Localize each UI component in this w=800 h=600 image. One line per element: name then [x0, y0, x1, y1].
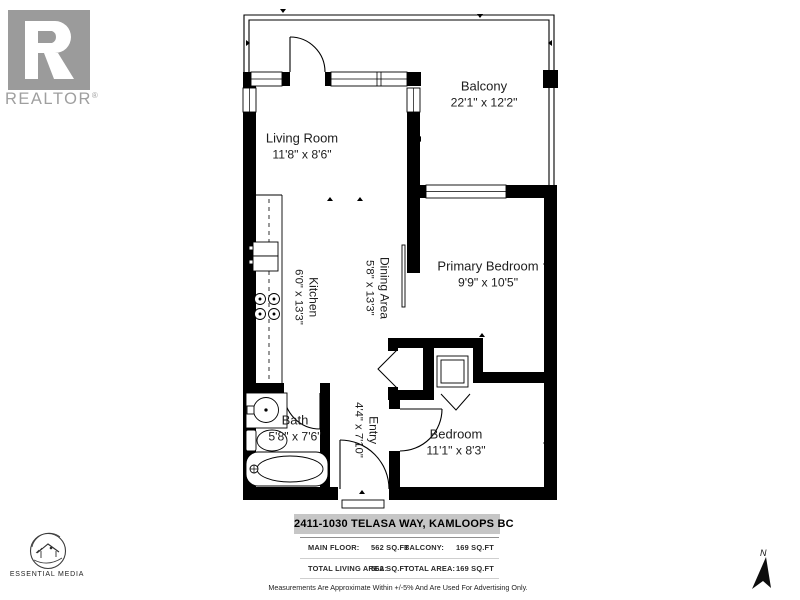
- room-label-living-room: Living Room 11'8" x 8'6": [266, 131, 338, 164]
- disclaimer-text: Measurements Are Approximate Within +/-5…: [268, 583, 527, 592]
- table-rule-mid: [300, 558, 499, 559]
- cooktop-icon: [255, 294, 280, 320]
- area-value: 169 SQ.FT: [456, 564, 494, 573]
- room-label-kitchen: Kitchen 6'0" x 13'3": [291, 269, 320, 325]
- entry-threshold: [342, 500, 384, 508]
- washer-icon: [437, 356, 468, 387]
- address-bar: 2411-1030 TELASA WAY, KAMLOOPS BC: [294, 514, 500, 534]
- area-label: MAIN FLOOR:: [308, 543, 359, 552]
- room-label-bath: Bath 5'8" x 7'6": [268, 413, 321, 446]
- table-rule-top: [300, 537, 499, 538]
- room-label-dining-area: Dining Area 5'8" x 13'3": [362, 257, 391, 319]
- window: [426, 185, 506, 198]
- window: [243, 88, 256, 112]
- area-label: TOTAL AREA:: [404, 564, 455, 573]
- window: [407, 88, 420, 112]
- bathtub-icon: [246, 452, 328, 486]
- window: [251, 72, 282, 86]
- floor-plan-page: REALTOR®: [0, 0, 800, 600]
- kitchen-counter: [256, 195, 282, 383]
- essential-media-logo-icon: [20, 528, 80, 576]
- essential-media-label: ESSENTIAL MEDIA: [7, 571, 87, 578]
- area-value: 169 SQ.FT: [456, 543, 494, 552]
- table-rule-bottom: [300, 578, 499, 579]
- window: [331, 72, 407, 86]
- sliding-door: [402, 245, 405, 307]
- room-label-primary-bedroom: Primary Bedroom 9'9" x 10'5": [437, 259, 538, 292]
- room-label-entry: Entry 4'4" x 7'10": [351, 402, 380, 458]
- fridge-icon: [249, 242, 278, 271]
- laundry-bifold-door: [441, 394, 470, 410]
- floor-plan-svg: [0, 0, 800, 600]
- area-label: BALCONY:: [404, 543, 444, 552]
- balcony-door-swing: [290, 37, 325, 72]
- closet-bifold-door: [378, 350, 397, 388]
- north-arrow-icon: [745, 552, 780, 594]
- room-label-bedroom: Bedroom 11'1" x 8'3": [426, 427, 485, 460]
- room-label-balcony: Balcony 22'1" x 12'2": [451, 79, 518, 112]
